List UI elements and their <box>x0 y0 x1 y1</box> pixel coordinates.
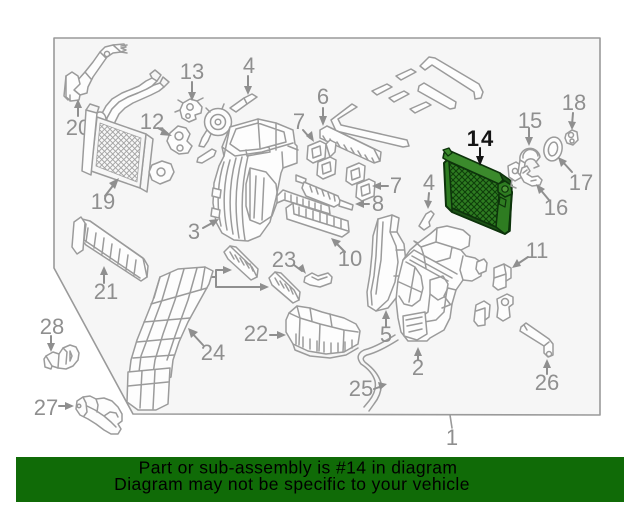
svg-text:27: 27 <box>34 395 58 420</box>
svg-text:2: 2 <box>412 355 424 380</box>
svg-text:8: 8 <box>372 191 384 216</box>
svg-text:25: 25 <box>349 376 373 401</box>
svg-text:10: 10 <box>338 246 362 271</box>
svg-text:13: 13 <box>180 59 204 84</box>
svg-text:4: 4 <box>243 53 255 78</box>
svg-text:16: 16 <box>544 195 568 220</box>
svg-text:3: 3 <box>188 219 200 244</box>
svg-text:14: 14 <box>467 126 495 151</box>
svg-text:Diagram may not be specific to: Diagram may not be specific to your vehi… <box>114 474 470 494</box>
svg-text:11: 11 <box>526 238 549 263</box>
svg-text:28: 28 <box>40 314 64 339</box>
svg-text:1: 1 <box>446 425 458 450</box>
svg-text:15: 15 <box>518 108 542 133</box>
svg-text:17: 17 <box>569 170 593 195</box>
svg-text:26: 26 <box>535 370 559 395</box>
svg-text:22: 22 <box>244 321 268 346</box>
svg-text:4: 4 <box>423 170 435 195</box>
svg-text:23: 23 <box>272 247 296 272</box>
svg-text:5: 5 <box>380 322 392 347</box>
svg-text:7: 7 <box>293 109 305 134</box>
svg-text:18: 18 <box>562 90 586 115</box>
svg-text:12: 12 <box>140 109 164 134</box>
svg-text:19: 19 <box>91 189 115 214</box>
svg-text:21: 21 <box>94 279 118 304</box>
svg-text:7: 7 <box>390 173 402 198</box>
svg-text:6: 6 <box>317 84 329 109</box>
svg-text:24: 24 <box>201 340 225 365</box>
